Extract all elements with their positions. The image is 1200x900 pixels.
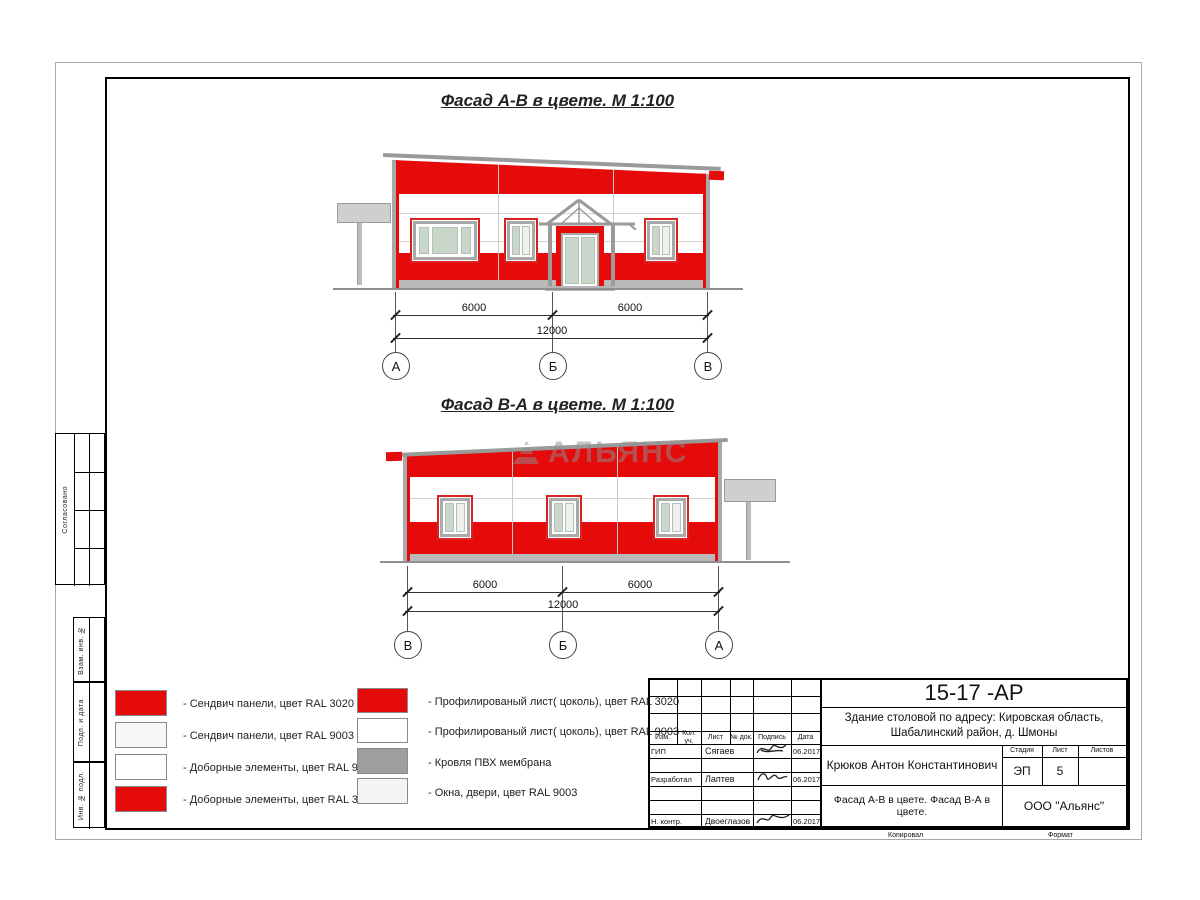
tb-name: Лаптев [705, 775, 735, 784]
stage-label: Стадия [1002, 745, 1042, 757]
extension-line [707, 292, 708, 352]
window [644, 218, 678, 263]
window-pane [522, 226, 530, 255]
window-pane [419, 227, 429, 254]
window [546, 495, 582, 540]
sidebar-box: Взам. инв. № [73, 617, 105, 682]
corner-trim [718, 437, 722, 562]
extension-line [718, 566, 719, 631]
tb-grid-line [648, 758, 820, 759]
tb-name: Двоеглазов [705, 817, 750, 826]
tb-grid-line [648, 772, 820, 773]
sidebar-box: Инв. № подл. [73, 762, 105, 828]
sidebar-label: Подп. и дата [78, 699, 85, 746]
axis-marker: А [705, 631, 733, 659]
corner-trim-red [703, 157, 706, 288]
legend-swatch [357, 718, 408, 743]
sidebar-label-cell: Инв. № подл. [74, 763, 89, 829]
stamp-grid-line [74, 472, 106, 473]
sidebar-label-cell: Взам. инв. № [74, 618, 89, 683]
door-leaf [581, 237, 595, 284]
stamp-grid-line [89, 618, 90, 683]
tb-grid-line [648, 786, 820, 787]
legend-label: - Профилированый лист( цоколь), цвет RAL… [428, 696, 679, 708]
canopy-post-right [746, 502, 751, 560]
legend-label: - Окна, двери, цвет RAL 9003 [428, 787, 577, 799]
legend-label: - Кровля ПВХ мембрана [428, 757, 551, 769]
door-leaf [565, 237, 579, 284]
legend-swatch [357, 688, 408, 713]
facade-ba-title: Фасад В-А в цвете. М 1:100 [330, 396, 785, 413]
object-line1: Здание столовой по адресу: Кировская обл… [822, 710, 1126, 726]
window-pane [672, 503, 681, 532]
tb-grid-line [648, 800, 820, 801]
roof-end-flashing [386, 452, 402, 462]
window-pane [554, 503, 563, 532]
dimension-value: 6000 [473, 579, 497, 591]
window-frame [656, 498, 686, 537]
dimension-value: 6000 [628, 579, 652, 591]
company-name: ООО "Альянс" [1002, 785, 1126, 828]
tb-date: 06.2017 [793, 748, 820, 756]
tb-col-header: Кол. уч. [677, 731, 701, 744]
approval-label: Согласовано [62, 486, 69, 534]
approval-label-cell: Согласовано [56, 434, 75, 586]
window-frame [413, 221, 477, 260]
legend-swatch [115, 786, 167, 812]
tb-grid-line [648, 814, 820, 815]
tb-divider [822, 707, 1126, 708]
window-frame [507, 221, 535, 260]
legend-label: - Доборные элементы, цвет RAL 3020 [183, 794, 376, 806]
tb-grid-line [648, 713, 820, 714]
window-pane [565, 503, 574, 532]
signature [755, 808, 791, 828]
object-line2: Шабалинский район, д. Шмоны [822, 725, 1126, 741]
extension-line [395, 292, 396, 352]
axis-marker: В [394, 631, 422, 659]
author-name: Крюков Антон Константинович [822, 745, 1002, 785]
dimension-value: 12000 [548, 599, 579, 611]
window-frame [647, 221, 675, 260]
watermark-text: АЛЬЯНС [548, 436, 688, 470]
sidebar-label-cell: Подп. и дата [74, 683, 89, 763]
dimension-value: 6000 [618, 302, 642, 314]
stamp-grid-line [89, 683, 90, 763]
watermark: АЛЬЯНС [512, 436, 688, 470]
tb-grid-line [791, 678, 792, 828]
legend-label: - Сендвич панели, цвет RAL 9003 [183, 730, 354, 742]
window-frame [440, 498, 470, 537]
canopy-slab-left [337, 203, 391, 223]
tb-grid-line [648, 696, 820, 697]
legend-label: - Доборные элементы, цвет RAL 9003 [183, 762, 376, 774]
sheet-number: 5 [1042, 757, 1078, 785]
sheet-label: Лист [1042, 745, 1078, 757]
window-pane [512, 226, 520, 255]
corner-trim-red [715, 437, 718, 562]
window-frame [549, 498, 579, 537]
roof-end-flashing [709, 171, 724, 181]
canopy-slab-right [724, 479, 776, 502]
copied-label: Копировал [888, 832, 923, 839]
extension-line [552, 292, 553, 352]
tb-col-header: Изм. [648, 731, 677, 744]
ground-line [380, 561, 790, 563]
tb-date: 06.2017 [793, 776, 820, 784]
signature [755, 740, 789, 758]
window [504, 218, 538, 263]
window-pane [662, 226, 670, 255]
axis-marker: А [382, 352, 410, 380]
tb-grid-line [648, 744, 820, 745]
stamp-grid-line [74, 510, 106, 511]
legend-swatch [357, 778, 408, 804]
drawing-subtitle: Фасад А-В в цвете. Фасад В-А в цвете. [822, 785, 1002, 828]
dimension-line-total [393, 338, 709, 339]
format-label: Формат [1048, 832, 1073, 839]
legend-label: - Сендвич панели, цвет RAL 3020 [183, 698, 354, 710]
window-pane [652, 226, 660, 255]
window-pane [456, 503, 465, 532]
axis-marker: В [694, 352, 722, 380]
stamp-grid-line [89, 763, 90, 829]
canopy-post-left [357, 223, 362, 285]
legend-swatch [357, 748, 408, 774]
tb-name: Сягаев [705, 747, 734, 756]
tb-date: 06.2017 [793, 818, 820, 826]
axis-marker: Б [549, 631, 577, 659]
tb-col-header: № док. [730, 731, 753, 744]
drawing-sheet: Фасад А-В в цвете. М 1:100 [0, 0, 1200, 900]
sheets-total [1078, 757, 1126, 785]
legend-label: - Профилированый лист( цоколь), цвет RAL… [428, 726, 679, 738]
legend-swatch [115, 722, 167, 748]
dimension-line-total [405, 611, 720, 612]
ground-line [333, 288, 743, 290]
window-pane [661, 503, 670, 532]
tb-role: ГИП [651, 748, 666, 756]
tb-role: Разработал [651, 776, 692, 784]
corner-trim-red [396, 157, 399, 288]
window [437, 495, 473, 540]
legend-swatch [115, 754, 167, 780]
window [653, 495, 689, 540]
axis-marker: Б [539, 352, 567, 380]
entrance-gable-truss [539, 196, 639, 230]
window-pane [461, 227, 471, 254]
entrance-door [561, 233, 599, 288]
window [410, 218, 480, 263]
signature [755, 768, 789, 786]
porch-post [611, 224, 615, 288]
approval-stamp: Согласовано [55, 433, 105, 585]
legend-swatch [115, 690, 167, 716]
facade-ab-title: Фасад А-В в цвете. М 1:100 [330, 92, 785, 109]
tb-role: Н. контр. [651, 818, 682, 826]
alliance-logo-icon [512, 440, 542, 466]
panel-seam [498, 157, 499, 280]
extension-line [407, 566, 408, 631]
porch-post [548, 224, 552, 288]
tb-col-header: Лист [701, 731, 730, 744]
tb-col-header: Дата [791, 731, 820, 744]
sidebar-label: Взам. инв. № [78, 626, 85, 675]
tb-grid-line [701, 678, 702, 828]
stamp-grid-line [74, 548, 106, 549]
doc-code: 15-17 -АР [822, 678, 1126, 707]
sheets-label: Листов [1078, 745, 1126, 757]
window-pane [432, 227, 458, 254]
sidebar-label: Инв. № подл. [78, 771, 85, 820]
dimension-value: 6000 [462, 302, 486, 314]
window-pane [445, 503, 454, 532]
tb-grid-line [753, 678, 754, 828]
stage-value: ЭП [1002, 757, 1042, 785]
dimension-value: 12000 [537, 325, 568, 337]
sidebar-box: Подп. и дата [73, 682, 105, 762]
